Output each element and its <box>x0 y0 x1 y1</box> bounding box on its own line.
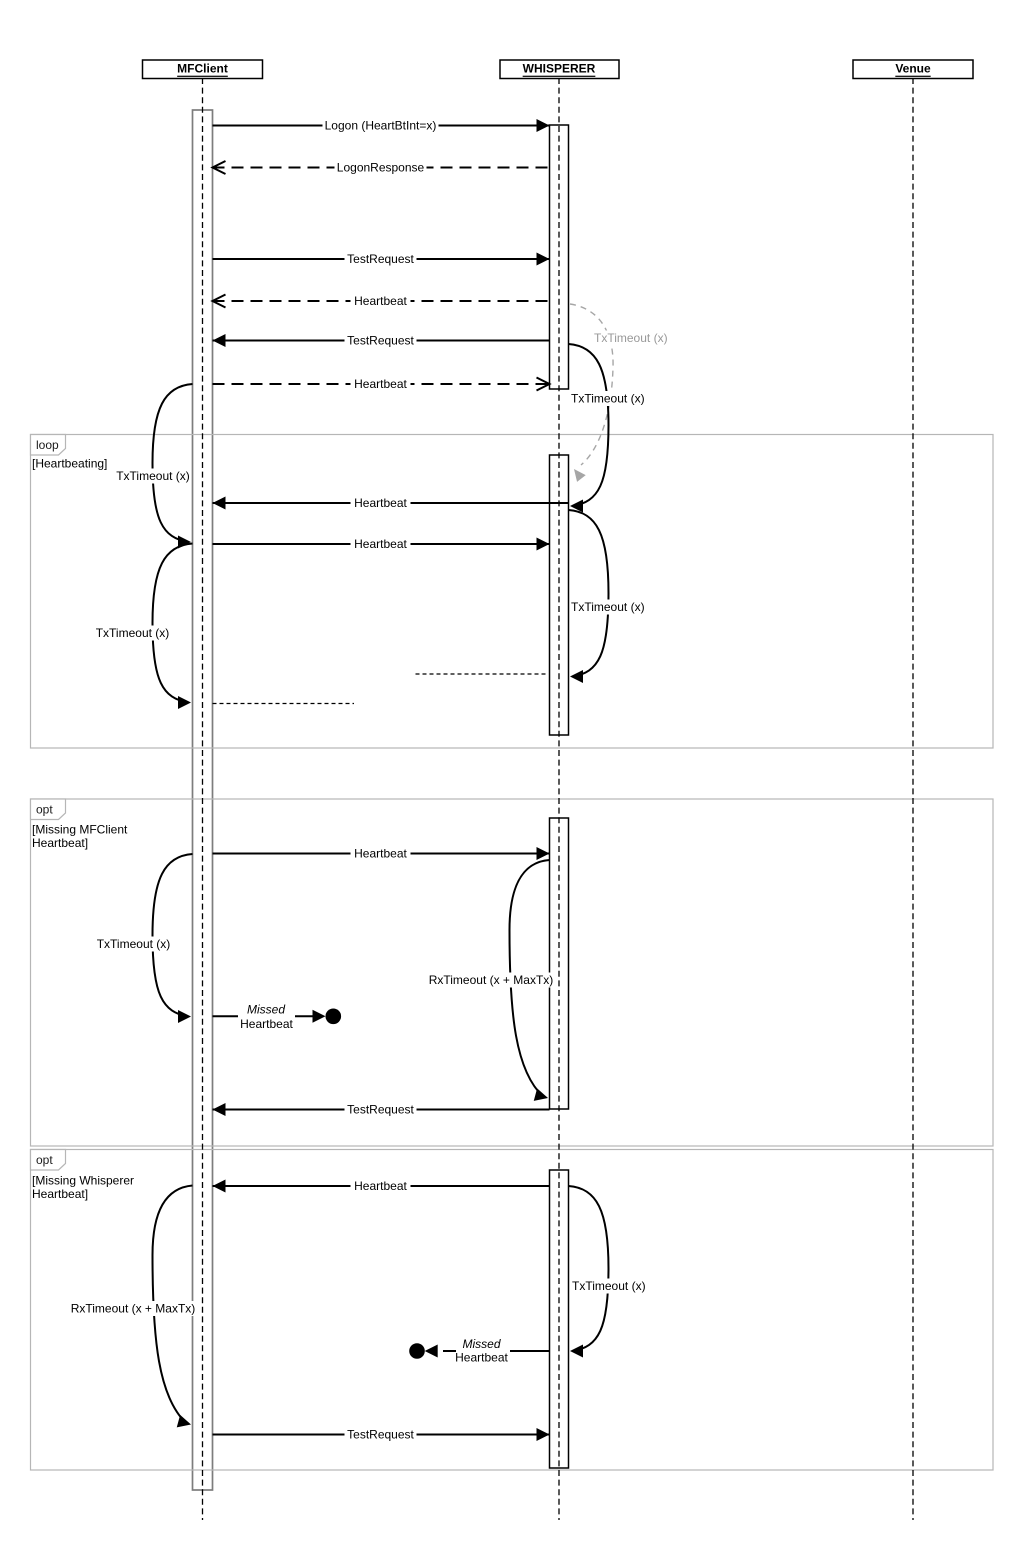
svg-text:[Heartbeating]: [Heartbeating] <box>32 457 107 471</box>
svg-text:TxTimeout (x): TxTimeout (x) <box>97 937 171 951</box>
svg-text:Logon (HeartBtInt=x): Logon (HeartBtInt=x) <box>325 119 437 133</box>
svg-text:TxTimeout (x): TxTimeout (x) <box>96 626 170 640</box>
svg-text:LogonResponse: LogonResponse <box>337 161 425 175</box>
svg-text:TxTimeout (x): TxTimeout (x) <box>116 469 190 483</box>
svg-text:MFClient: MFClient <box>177 62 228 76</box>
svg-text:TxTimeout (x): TxTimeout (x) <box>571 600 645 614</box>
svg-text:Heartbeat: Heartbeat <box>455 1351 508 1365</box>
svg-text:WHISPERER: WHISPERER <box>523 62 596 76</box>
svg-text:TestRequest: TestRequest <box>347 1428 414 1442</box>
svg-text:opt: opt <box>36 1153 53 1167</box>
svg-text:Heartbeat: Heartbeat <box>354 496 407 510</box>
svg-text:Heartbeat]: Heartbeat] <box>32 1187 88 1201</box>
svg-text:TxTimeout (x): TxTimeout (x) <box>572 1279 646 1293</box>
svg-text:Missed: Missed <box>247 1003 285 1017</box>
svg-text:Heartbeat]: Heartbeat] <box>32 836 88 850</box>
svg-text:Heartbeat: Heartbeat <box>354 294 407 308</box>
svg-text:[Missing MFClient: [Missing MFClient <box>32 823 128 837</box>
svg-text:loop: loop <box>36 438 59 452</box>
svg-text:Heartbeat: Heartbeat <box>240 1017 293 1031</box>
svg-text:TestRequest: TestRequest <box>347 1103 414 1117</box>
svg-text:Venue: Venue <box>895 62 931 76</box>
svg-text:opt: opt <box>36 803 53 817</box>
svg-text:TxTimeout (x): TxTimeout (x) <box>594 331 668 345</box>
svg-text:Heartbeat: Heartbeat <box>354 1179 407 1193</box>
svg-text:RxTimeout (x + MaxTx): RxTimeout (x + MaxTx) <box>429 973 554 987</box>
svg-text:TestRequest: TestRequest <box>347 252 414 266</box>
svg-text:Heartbeat: Heartbeat <box>354 377 407 391</box>
svg-text:Heartbeat: Heartbeat <box>354 537 407 551</box>
svg-text:RxTimeout (x + MaxTx): RxTimeout (x + MaxTx) <box>71 1302 196 1316</box>
svg-text:TestRequest: TestRequest <box>347 334 414 348</box>
svg-text:TxTimeout (x): TxTimeout (x) <box>571 392 645 406</box>
svg-text:Missed: Missed <box>462 1337 500 1351</box>
svg-text:Heartbeat: Heartbeat <box>354 847 407 861</box>
svg-text:[Missing Whisperer: [Missing Whisperer <box>32 1174 134 1188</box>
